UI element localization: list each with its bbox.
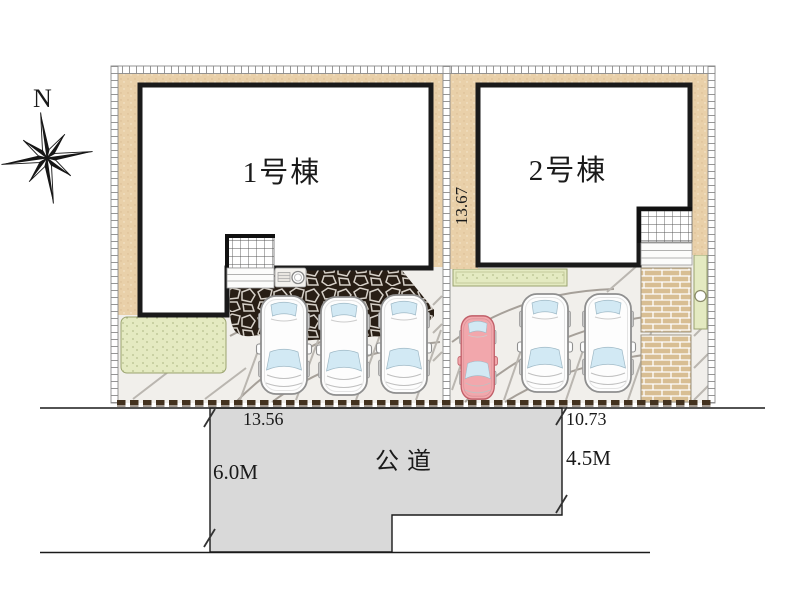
dimension-site-depth: 13.67 (452, 179, 472, 233)
car-white-5 (581, 294, 636, 392)
front-boundary-strip (113, 400, 715, 407)
planting-strip (453, 269, 567, 286)
entrance-porch-slab (275, 268, 306, 287)
compass-rose-icon (0, 106, 99, 210)
building-1-entrance-steps (227, 268, 274, 288)
planting-strip-side (694, 255, 707, 329)
dimension-frontage-left: 13.56 (243, 409, 284, 430)
road-width-left-label: 6.0M (213, 460, 258, 485)
car-pink (458, 316, 498, 399)
car-white-3 (377, 295, 432, 393)
brick-path (641, 268, 691, 402)
building-2-entrance-tiles (639, 209, 692, 243)
site-plan-drawing (0, 0, 800, 600)
car-white-4 (518, 294, 573, 392)
car-white-2 (317, 297, 372, 395)
building-1-label: 1号棟 (222, 149, 342, 191)
site-plan: N 1号棟 2号棟 13.67 13.56 10.73 公道 6.0M 4.5M (0, 0, 800, 600)
building-2-label: 2号棟 (508, 147, 628, 189)
building-2-entrance-steps (641, 243, 692, 265)
road-width-right-label: 4.5M (566, 446, 611, 471)
car-white-1 (257, 296, 312, 394)
compass-north-label: N (33, 84, 52, 114)
lawn-patch (121, 317, 226, 373)
building-1-entrance-tiles (227, 236, 275, 268)
dimension-frontage-right: 10.73 (566, 409, 607, 430)
road-label: 公道 (375, 441, 439, 476)
